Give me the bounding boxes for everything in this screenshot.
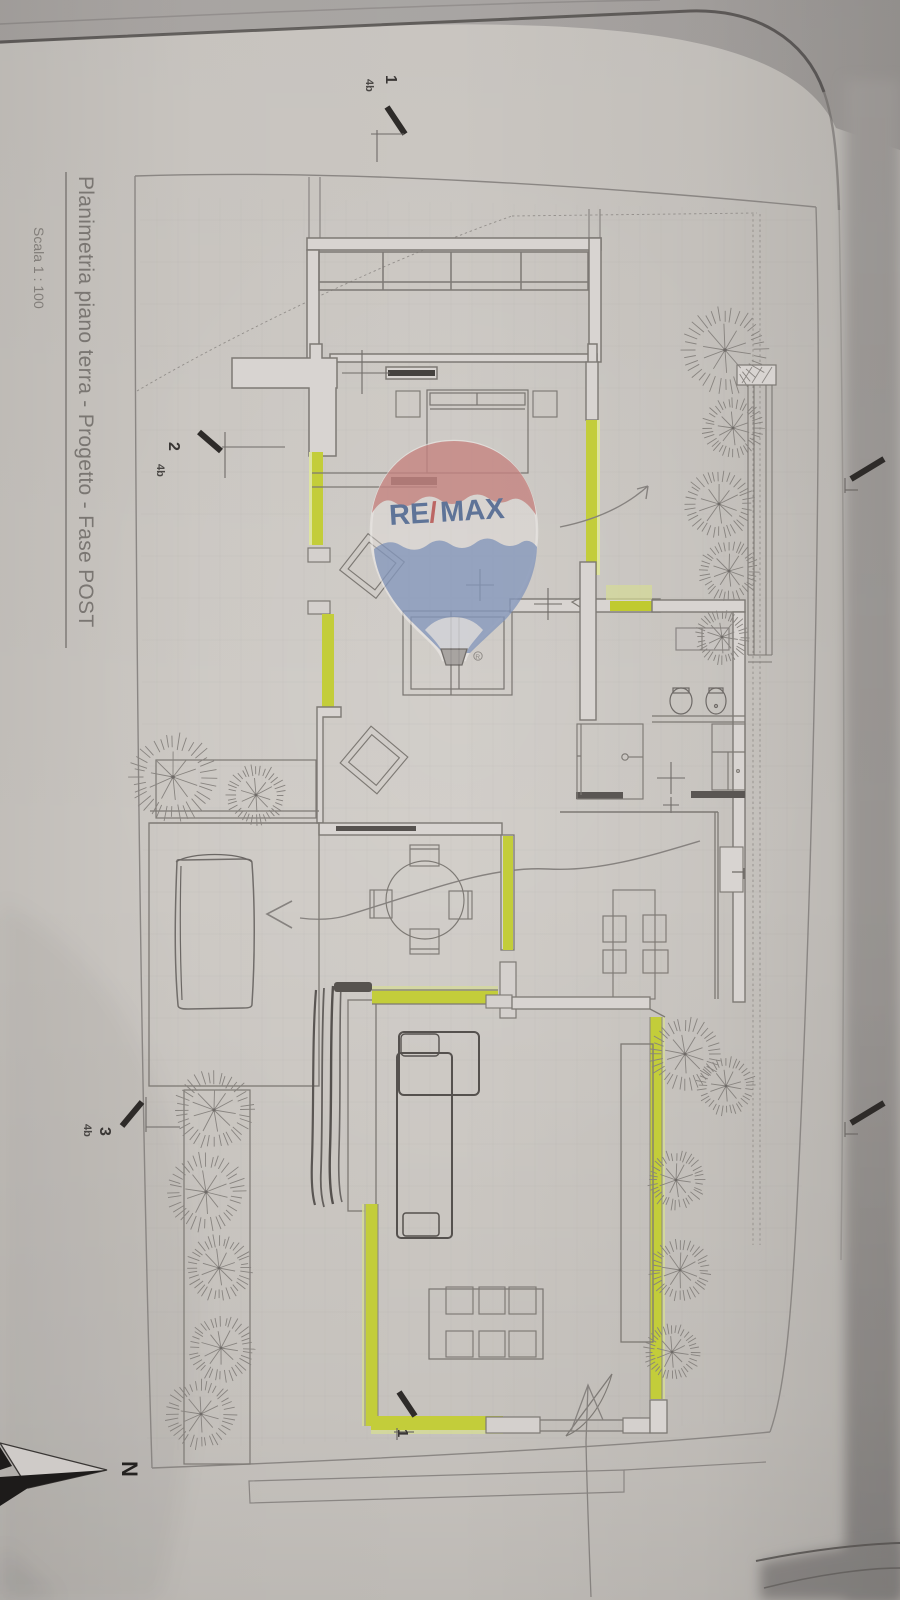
svg-text:4b: 4b — [363, 79, 375, 92]
svg-text:N: N — [117, 1461, 142, 1477]
svg-text:Scala 1 : 100: Scala 1 : 100 — [31, 227, 47, 309]
svg-text:4b: 4b — [81, 1124, 93, 1137]
svg-text:RE: RE — [388, 498, 430, 532]
svg-text:1: 1 — [382, 75, 399, 84]
svg-text:MAX: MAX — [439, 493, 506, 529]
svg-text:2: 2 — [165, 442, 182, 451]
svg-text:1: 1 — [394, 1429, 411, 1437]
svg-text:R: R — [475, 654, 480, 661]
svg-text:4b: 4b — [154, 464, 166, 477]
svg-text:Planimetria piano terra - Prog: Planimetria piano terra - Progetto - Fas… — [74, 176, 97, 627]
svg-text:3: 3 — [96, 1127, 113, 1136]
